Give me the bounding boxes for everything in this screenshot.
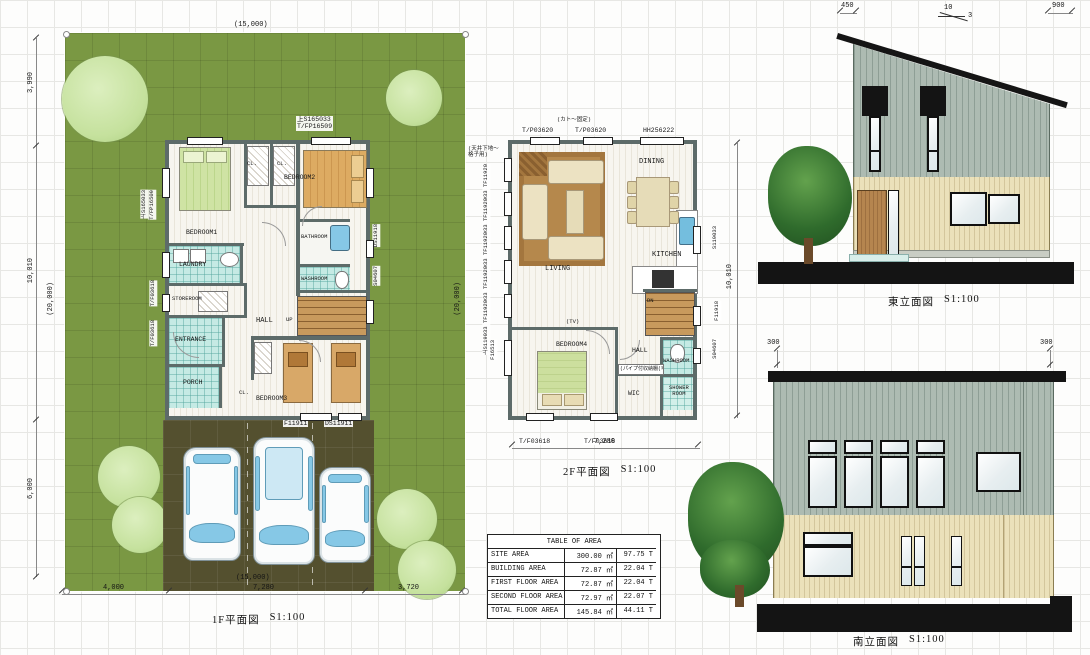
- tree-icon: [386, 70, 442, 126]
- car-windshield: [259, 525, 308, 545]
- architectural-drawing-sheet: BEDROOM1 BEDROOM2 CL. CL. BATHROOM WASHR…: [0, 0, 1090, 655]
- window-code: T/F03618: [149, 280, 157, 306]
- window-mullion: [951, 566, 962, 568]
- car-side-window: [234, 466, 238, 515]
- dimension-line: [1050, 350, 1051, 368]
- desk-chair: [336, 352, 356, 367]
- dimension-line: [840, 13, 857, 14]
- dimension-label: 6,000: [27, 478, 35, 499]
- room-label: CL.: [247, 161, 257, 167]
- car-side-window: [308, 456, 313, 511]
- sofa: [522, 184, 548, 240]
- east-slot-window-head: [920, 86, 946, 116]
- table-row: FIRST FLOOR AREA 72.87 ㎡ 22.04 T: [488, 576, 660, 590]
- south-wide-window-transom: [803, 532, 853, 546]
- window-gap: [366, 168, 374, 198]
- dimension-label: 900: [1052, 2, 1065, 10]
- window-code: T/F03618: [149, 320, 157, 346]
- dining-chair: [669, 196, 679, 209]
- row-m2: 72.87 ㎡: [564, 576, 616, 590]
- window-code: F11911: [283, 420, 308, 427]
- window-mullion: [869, 150, 881, 152]
- dimension-label: 3,990: [27, 72, 35, 93]
- dimension-line: [36, 38, 37, 577]
- window-gap: [693, 226, 701, 254]
- tree-icon: [112, 497, 168, 553]
- window-mullion: [901, 566, 912, 568]
- dimension-line: [737, 143, 738, 418]
- window-gap: [504, 294, 512, 318]
- window-gap: [311, 137, 351, 145]
- car-windshield: [189, 523, 235, 543]
- parking-stall-line: [247, 423, 248, 588]
- wall: [169, 243, 244, 246]
- room-label: STOREROOM: [172, 296, 202, 302]
- drawing-title-south: 南立面図 S1:100: [853, 634, 945, 649]
- window-code: T/P03620: [574, 127, 607, 134]
- south-tall-window: [808, 456, 837, 508]
- window-gap: [590, 413, 618, 421]
- drawing-title-text: 1F平面図: [212, 612, 260, 627]
- room-porch: [169, 367, 219, 408]
- siding-seam: [1003, 515, 1004, 598]
- window-code: S04607: [372, 266, 380, 286]
- car-roof-opening: [265, 447, 303, 500]
- wall: [251, 336, 254, 380]
- sofa: [548, 236, 604, 260]
- drawing-scale: S1:100: [621, 464, 657, 479]
- window-gap: [162, 168, 170, 198]
- wall: [219, 364, 222, 408]
- dining-chair: [669, 181, 679, 194]
- window-gap: [504, 260, 512, 284]
- dimension-label: 450: [841, 2, 854, 10]
- tree-trunk: [804, 238, 813, 264]
- room-label: WASHROOM: [663, 358, 689, 364]
- room-label: CL.: [239, 390, 249, 396]
- drawing-scale: S1:100: [270, 612, 306, 627]
- east-window: [988, 194, 1020, 224]
- row-tsubo: 22.04 T: [616, 576, 656, 590]
- south-narrow-window: [901, 536, 912, 586]
- dimension-label: 10,010: [726, 264, 734, 289]
- room-label: WIC: [628, 390, 640, 397]
- dimension-line: [62, 594, 465, 595]
- east-door-sidelight: [888, 190, 899, 256]
- note-line: 格子用): [468, 152, 499, 158]
- room-label: PORCH: [183, 379, 203, 386]
- room-label: CL.: [277, 161, 287, 167]
- row-label: BUILDING AREA: [488, 562, 564, 576]
- car-side-window: [322, 485, 327, 523]
- window-gap: [504, 226, 512, 250]
- window-gap: [366, 240, 374, 258]
- room-label: BEDROOM4: [556, 341, 587, 348]
- window-gap: [530, 137, 560, 145]
- window-gap: [300, 413, 332, 421]
- tree-icon: [768, 146, 852, 246]
- stairs-1f: [297, 296, 367, 336]
- window-code: T/FP16509: [296, 123, 333, 130]
- slope-rise-label: 3: [968, 12, 972, 20]
- south-ground-band: [757, 604, 1072, 632]
- boundary-marker: [63, 588, 70, 595]
- boundary-marker: [63, 31, 70, 38]
- pillow: [351, 180, 364, 203]
- tree-icon: [62, 56, 148, 142]
- wall: [512, 327, 618, 330]
- pillow: [183, 151, 204, 163]
- bed-double: [537, 351, 587, 410]
- car-rear-window: [193, 454, 231, 464]
- table-row: SITE AREA 300.00 ㎡ 97.75 T: [488, 548, 660, 562]
- window-gap: [526, 413, 554, 421]
- south-narrow-window: [914, 536, 925, 586]
- wall: [169, 283, 247, 286]
- window-gap: [187, 137, 223, 145]
- drawing-title-2f: 2F平面図 S1:100: [563, 464, 656, 479]
- car-side-window: [364, 485, 369, 523]
- fixture-note: (カト〜固定): [557, 117, 591, 123]
- dimension-tick: [33, 573, 39, 579]
- car-minivan: [183, 447, 241, 561]
- wall: [643, 289, 697, 292]
- row-m2: 145.84 ㎡: [564, 604, 616, 618]
- window-gap: [504, 158, 512, 182]
- room-label: ROOM: [672, 391, 685, 397]
- row-tsubo: 22.07 T: [616, 590, 656, 604]
- rug-corner-hatch: [519, 152, 547, 176]
- row-m2: 72.87 ㎡: [564, 562, 616, 576]
- dimension-label: 3,720: [398, 584, 419, 592]
- boundary-marker: [462, 31, 469, 38]
- south-tall-window-transom: [916, 440, 945, 454]
- boundary-marker: [462, 588, 469, 595]
- window-gap: [693, 348, 701, 364]
- dining-table: [636, 177, 670, 227]
- window-gap: [162, 252, 170, 278]
- south-square-window: [976, 452, 1021, 492]
- row-tsubo: 22.04 T: [616, 562, 656, 576]
- window-code: T/FP16509: [148, 190, 156, 220]
- east-entry-step: [849, 254, 909, 262]
- east-window: [950, 192, 987, 226]
- dining-chair: [627, 196, 637, 209]
- room-label: DINING: [639, 158, 664, 166]
- pillow: [206, 151, 227, 163]
- drawing-title-text: 東立面図: [888, 294, 934, 309]
- wall: [296, 140, 300, 296]
- row-label: FIRST FLOOR AREA: [488, 576, 564, 590]
- table-row: BUILDING AREA 72.87 ㎡ 22.04 T: [488, 562, 660, 576]
- pillow: [351, 155, 364, 178]
- room-label: LIVING: [545, 265, 570, 273]
- table-row: SECOND FLOOR AREA 72.97 ㎡ 22.07 T: [488, 590, 660, 604]
- pillow: [542, 394, 562, 406]
- bathtub: [330, 225, 350, 251]
- area-table: TABLE OF AREA SITE AREA 300.00 ㎡ 97.75 T…: [487, 534, 661, 619]
- dining-chair: [669, 211, 679, 224]
- dimension-label: (20,000): [47, 282, 55, 316]
- room-label: BEDROOM1: [186, 229, 217, 236]
- stove: [652, 270, 674, 288]
- wall: [299, 290, 367, 293]
- east-slot-window: [927, 116, 939, 172]
- drawing-title-text: 南立面図: [853, 634, 899, 649]
- area-table-title: TABLE OF AREA: [488, 535, 660, 548]
- window-code: 上S119033 TF11920: [482, 300, 490, 355]
- south-wide-window: [803, 546, 853, 577]
- row-label: TOTAL FLOOR AREA: [488, 604, 564, 618]
- car-windshield: [325, 530, 365, 547]
- window-gap: [162, 294, 170, 312]
- dimension-label: 10,010: [27, 258, 35, 283]
- south-tall-window-transom: [808, 440, 837, 454]
- pillow: [564, 394, 584, 406]
- wall: [169, 315, 247, 318]
- window-gap: [504, 340, 512, 376]
- window-gap: [583, 137, 613, 145]
- dimension-label: 4,000: [103, 584, 124, 592]
- south-tall-window: [844, 456, 873, 508]
- row-label: SITE AREA: [488, 548, 564, 562]
- dimension-label: (15,000): [234, 21, 268, 29]
- wall: [244, 283, 247, 318]
- dimension-label: (15,000): [236, 574, 270, 582]
- car-side-window: [255, 456, 260, 511]
- dimension-tick: [509, 441, 515, 447]
- siding-seam: [1023, 382, 1024, 515]
- room-label: ENTRANCE: [175, 336, 206, 343]
- wall: [270, 140, 273, 208]
- east-entry-door: [857, 190, 887, 256]
- car-rear-window: [328, 474, 362, 483]
- car-side-window: [186, 466, 190, 515]
- window-code: S119033: [711, 226, 719, 249]
- drawing-title-east: 東立面図 S1:100: [888, 294, 980, 309]
- wall: [244, 140, 247, 208]
- ceiling-note: (天井下地〜 格子用): [468, 146, 499, 159]
- room-label: HALL: [256, 317, 273, 325]
- window-code: T/P03620: [521, 127, 554, 134]
- window-mullion: [927, 150, 939, 152]
- window-code: HH256222: [642, 127, 675, 134]
- row-tsubo: 44.11 T: [616, 604, 656, 618]
- bed-double: [179, 147, 231, 211]
- room-label: KITCHEN: [652, 251, 681, 259]
- row-label: SECOND FLOOR AREA: [488, 590, 564, 604]
- south-tall-window-transom: [844, 440, 873, 454]
- wall: [251, 336, 370, 340]
- window-gap: [338, 413, 362, 421]
- coffee-table: [566, 190, 584, 234]
- window-code: T/F03618: [518, 438, 551, 445]
- drawing-title-1f: 1F平面図 S1:100: [212, 612, 305, 627]
- closet-hatch: [254, 342, 272, 374]
- window-mullion: [914, 566, 925, 568]
- east-slot-window: [869, 116, 881, 172]
- dining-chair: [627, 181, 637, 194]
- toilet-icon: [335, 271, 349, 289]
- window-gap: [366, 300, 374, 324]
- room-label: BEDROOM2: [284, 174, 315, 181]
- slope-run-label: 10: [944, 4, 952, 12]
- wall: [660, 337, 697, 340]
- dimension-line: [777, 350, 778, 368]
- tree-icon: [377, 489, 437, 549]
- dimension-label: 7,280: [594, 438, 615, 446]
- drawing-title-text: 2F平面図: [563, 464, 611, 479]
- room-label-shower: SHOWER ROOM: [669, 385, 689, 398]
- room-label: BEDROOM3: [256, 395, 287, 402]
- sofa: [548, 160, 604, 184]
- south-ground-step: [1050, 596, 1072, 605]
- drawing-scale: S1:100: [944, 294, 980, 309]
- room-label: BATHROOM: [301, 234, 327, 240]
- stairs-up-label: UP: [286, 317, 293, 323]
- storeroom-shelf: [198, 291, 228, 312]
- wall: [244, 205, 300, 208]
- room-label: HALL: [632, 347, 648, 354]
- window-code: S04607: [711, 339, 719, 359]
- stairs-down-label: DN: [647, 298, 654, 304]
- room-label: WASHROOM: [301, 276, 327, 282]
- south-narrow-window: [951, 536, 962, 586]
- dimension-label: 7,280: [253, 584, 274, 592]
- window-gap: [640, 137, 684, 145]
- sink-icon: [220, 252, 239, 267]
- wall: [240, 243, 243, 286]
- room-label: LAUNDRY: [179, 261, 206, 268]
- wall: [299, 264, 350, 267]
- east-slot-window-head: [862, 86, 888, 116]
- dimension-tick: [695, 441, 701, 447]
- south-tall-window: [916, 456, 945, 508]
- car-van-open-roof: [253, 437, 315, 565]
- window-code-group: 上S165033 T/FP16509: [296, 116, 333, 131]
- row-tsubo: 97.75 T: [616, 548, 656, 562]
- wall: [169, 364, 224, 367]
- row-m2: 72.97 ㎡: [564, 590, 616, 604]
- south-tall-window-transom: [880, 440, 909, 454]
- dimension-line: [512, 448, 700, 449]
- window-code: 上S165033: [296, 116, 333, 123]
- drawing-scale: S1:100: [909, 634, 945, 649]
- dimension-label: (20,000): [454, 282, 462, 316]
- table-row: TOTAL FLOOR AREA 145.84 ㎡ 44.11 T: [488, 604, 660, 618]
- desk-unit: [331, 343, 361, 403]
- wall: [222, 315, 225, 367]
- row-m2: 300.00 ㎡: [564, 548, 616, 562]
- east-ground-band: [758, 262, 1074, 284]
- south-roof: [768, 371, 1066, 382]
- tv-note: (TV): [566, 319, 579, 325]
- window-code: F11918: [713, 301, 721, 321]
- window-code: DS11911: [324, 420, 353, 427]
- window-gap: [504, 192, 512, 216]
- dining-chair: [627, 211, 637, 224]
- wall: [663, 374, 697, 377]
- south-tall-window: [880, 456, 909, 508]
- car-compact: [319, 467, 371, 563]
- window-gap: [693, 306, 701, 326]
- tree-trunk: [735, 585, 744, 607]
- wic-note: (パイプ付収納棚(可動)): [618, 364, 664, 375]
